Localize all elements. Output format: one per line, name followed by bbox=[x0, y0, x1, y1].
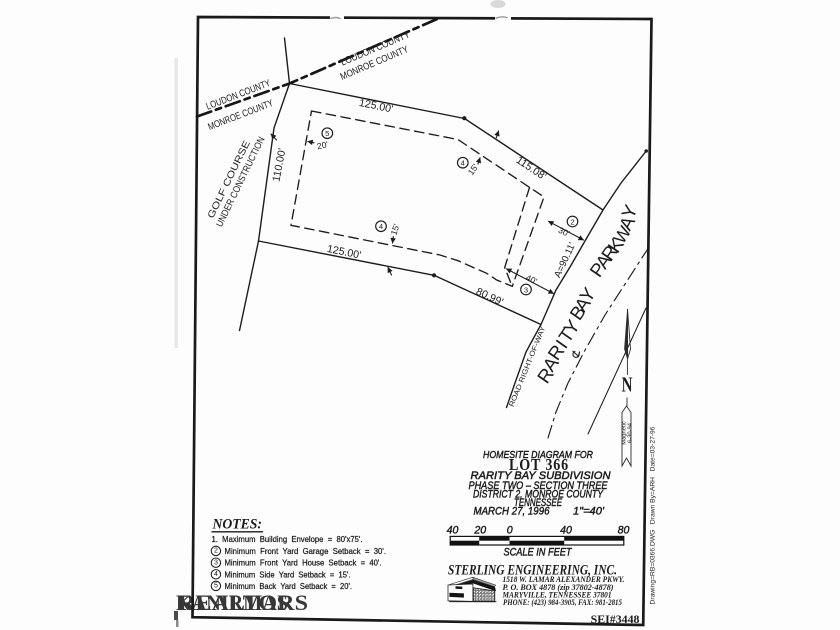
svg-text:20: 20 bbox=[473, 525, 486, 537]
svg-text:Minimum Front Yard Garage: Minimum Front Yard Garage Setback = 30'. bbox=[225, 546, 387, 556]
svg-text:SEI#3448: SEI#3448 bbox=[591, 612, 640, 626]
svg-text:4: 4 bbox=[461, 159, 465, 168]
svg-text:3: 3 bbox=[214, 560, 218, 567]
svg-text:5: 5 bbox=[325, 129, 329, 138]
svg-text:80: 80 bbox=[618, 525, 630, 537]
svg-text:Drawing=RB=0366.DWG Drawn By: Drawing=RB=0366.DWG Drawn By=ARH Date=03… bbox=[650, 426, 657, 604]
svg-text:MARCH 27, 1996: MARCH 27, 1996 bbox=[474, 506, 550, 518]
svg-text:4: 4 bbox=[214, 571, 218, 578]
svg-text:40: 40 bbox=[447, 525, 459, 537]
svg-text:2: 2 bbox=[214, 548, 218, 555]
svg-text:Minimum Front Yard House S: Minimum Front Yard House Setback = 40'. bbox=[225, 558, 382, 568]
svg-text:SCALE IN FEET: SCALE IN FEET bbox=[504, 546, 573, 558]
svg-text:3: 3 bbox=[524, 285, 528, 294]
svg-text:0: 0 bbox=[507, 525, 513, 537]
svg-text:4: 4 bbox=[379, 222, 383, 231]
svg-text:40: 40 bbox=[560, 525, 572, 537]
svg-text:Minimum Side Yard Setback: Minimum Side Yard Setback = 15'. bbox=[225, 569, 351, 579]
svg-text:2: 2 bbox=[570, 217, 574, 226]
svg-text:6-30-94: 6-30-94 bbox=[627, 422, 633, 443]
svg-text:PHONE: (423) 984-3905, FAX: 98: PHONE: (423) 984-3905, FAX: 981-2815 bbox=[503, 598, 622, 607]
svg-text:5: 5 bbox=[214, 583, 218, 590]
svg-text:N: N bbox=[622, 373, 633, 397]
svg-text:NOTES:: NOTES: bbox=[212, 516, 262, 533]
svg-text:1. Maximum Building Envelop: 1. Maximum Building Envelope = 80'x75'. bbox=[212, 534, 363, 544]
svg-text:REALTORS: REALTORS bbox=[178, 590, 308, 615]
svg-text:1"=40': 1"=40' bbox=[573, 506, 605, 518]
